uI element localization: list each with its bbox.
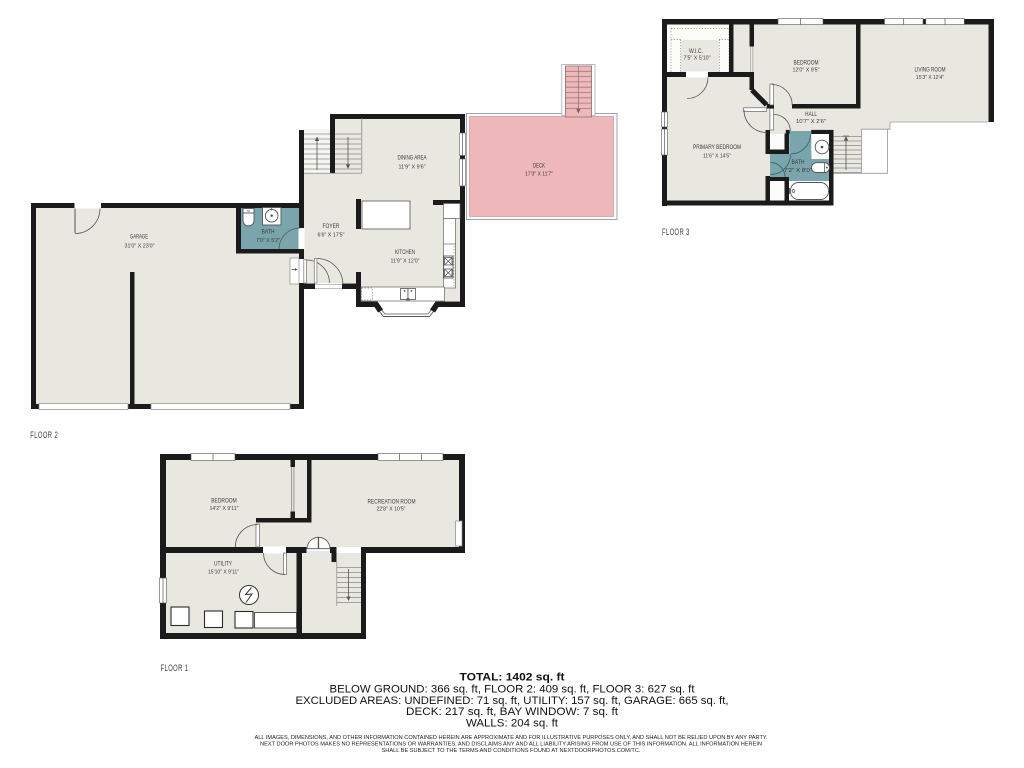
- svg-text:BELOW GROUND: 366 sq. ft, FLOO: BELOW GROUND: 366 sq. ft, FLOOR 2: 409 s…: [330, 683, 695, 695]
- svg-text:6'6" X 17'5": 6'6" X 17'5": [318, 233, 345, 239]
- svg-text:7'5" X 5'10": 7'5" X 5'10": [684, 56, 711, 62]
- svg-text:TOTAL: 1402 sq. ft: TOTAL: 1402 sq. ft: [460, 672, 565, 684]
- svg-text:15'3" X 12'4": 15'3" X 12'4": [916, 75, 944, 81]
- svg-text:31'0" X 23'0": 31'0" X 23'0": [125, 244, 155, 250]
- svg-text:15'10" X 9'11": 15'10" X 9'11": [208, 570, 239, 576]
- svg-text:LIVING ROOM: LIVING ROOM: [915, 67, 946, 74]
- svg-text:W.I.C.: W.I.C.: [689, 48, 703, 55]
- svg-text:FLOOR 2: FLOOR 2: [30, 430, 58, 440]
- svg-text:GARAGE: GARAGE: [130, 234, 148, 241]
- svg-text:SHALL BE SUBJECT TO THE TERMS: SHALL BE SUBJECT TO THE TERMS AND CONDIT…: [382, 748, 641, 754]
- svg-text:DECK: DECK: [533, 163, 546, 170]
- svg-text:17'3" X 11'7": 17'3" X 11'7": [525, 172, 553, 178]
- svg-text:11'6" X 14'5": 11'6" X 14'5": [703, 154, 731, 160]
- svg-text:14'2" X 9'11": 14'2" X 9'11": [210, 506, 239, 512]
- svg-text:KITCHEN: KITCHEN: [395, 249, 415, 256]
- svg-text:10'7" X 2'6": 10'7" X 2'6": [796, 119, 826, 125]
- svg-text:EXCLUDED AREAS: UNDEFINED: 71: EXCLUDED AREAS: UNDEFINED: 71 sq. ft, UT…: [296, 695, 729, 707]
- svg-text:HALL: HALL: [805, 111, 817, 118]
- svg-text:NEXT DOOR PHOTOS MAKES NO REPR: NEXT DOOR PHOTOS MAKES NO REPRESENTATION…: [260, 741, 762, 747]
- svg-text:11'9" X 12'0": 11'9" X 12'0": [391, 259, 420, 265]
- svg-text:11'9" X 9'6": 11'9" X 9'6": [399, 165, 426, 171]
- svg-text:12'0" X 9'5": 12'0" X 9'5": [793, 68, 820, 74]
- svg-text:RECREATION ROOM: RECREATION ROOM: [368, 499, 416, 506]
- svg-text:FOYER: FOYER: [323, 223, 340, 230]
- svg-text:7'2" X 8'0": 7'2" X 8'0": [784, 168, 812, 174]
- svg-text:BATH: BATH: [262, 229, 275, 236]
- svg-text:FLOOR 1: FLOOR 1: [161, 663, 189, 673]
- svg-text:BEDROOM: BEDROOM: [794, 60, 819, 67]
- svg-text:DECK: 217 sq. ft, BAY WINDOW:: DECK: 217 sq. ft, BAY WINDOW: 7 sq. ft: [406, 706, 618, 718]
- svg-text:7'0" X 5'2": 7'0" X 5'2": [256, 238, 280, 244]
- svg-text:22'8" X 10'5": 22'8" X 10'5": [377, 507, 406, 513]
- svg-text:FLOOR 3: FLOOR 3: [662, 227, 690, 237]
- svg-text:BATH: BATH: [792, 159, 805, 166]
- svg-text:DINING AREA: DINING AREA: [398, 155, 428, 162]
- svg-text:BEDROOM: BEDROOM: [211, 498, 237, 505]
- svg-text:PRIMARY BEDROOM: PRIMARY BEDROOM: [693, 144, 741, 151]
- svg-text:WALLS: 204 sq. ft: WALLS: 204 sq. ft: [466, 718, 558, 730]
- svg-text:ALL IMAGES, DIMENSIONS, AND OT: ALL IMAGES, DIMENSIONS, AND OTHER INFORM…: [255, 735, 768, 741]
- svg-text:UTILITY: UTILITY: [214, 561, 232, 568]
